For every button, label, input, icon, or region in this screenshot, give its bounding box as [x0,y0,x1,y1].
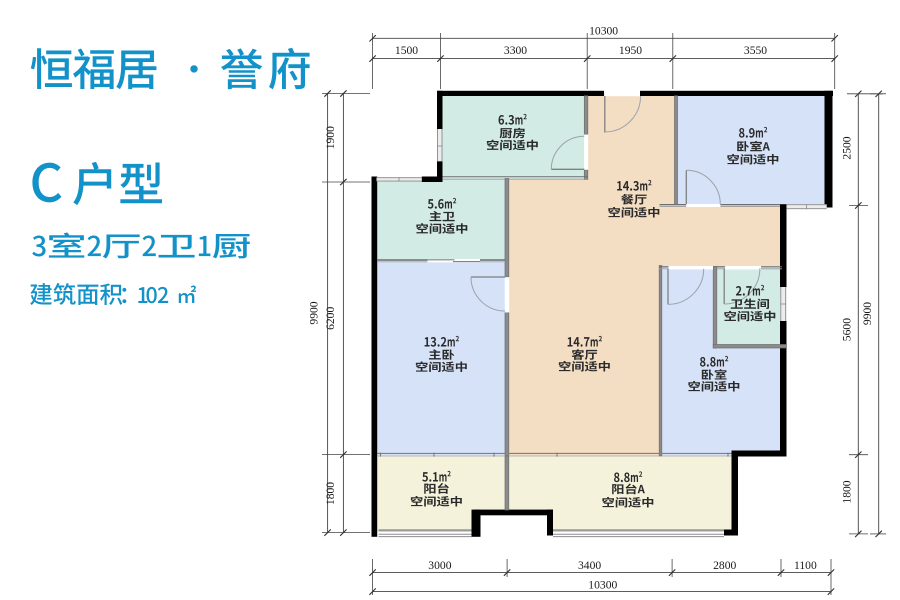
svg-text:2800: 2800 [713,559,736,572]
svg-text:10300: 10300 [589,24,618,37]
svg-text:3000: 3000 [428,559,451,572]
svg-text:2500: 2500 [841,136,854,159]
svg-text:3300: 3300 [504,44,527,57]
svg-text:9900: 9900 [861,302,874,325]
svg-text:3550: 3550 [744,44,767,57]
svg-text:5600: 5600 [841,318,854,341]
svg-text:1800: 1800 [324,482,337,505]
svg-text:6200: 6200 [324,307,337,330]
svg-text:1500: 1500 [395,44,418,57]
svg-text:10300: 10300 [588,579,617,592]
svg-text:9900: 9900 [308,301,321,324]
svg-text:1900: 1900 [324,126,337,149]
svg-text:1800: 1800 [841,480,854,503]
svg-text:3400: 3400 [578,559,601,572]
svg-text:1100: 1100 [794,559,817,572]
svg-text:1950: 1950 [619,44,642,57]
